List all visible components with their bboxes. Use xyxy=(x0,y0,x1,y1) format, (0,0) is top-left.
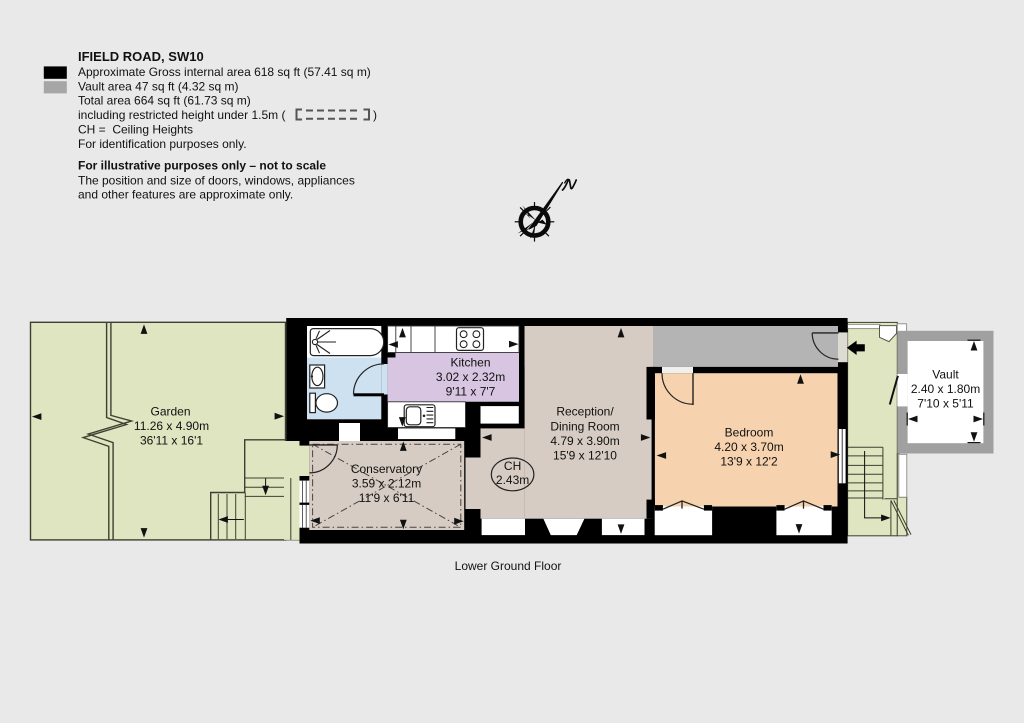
svg-text:36'11 x 16'1: 36'11 x 16'1 xyxy=(140,434,203,448)
svg-text:The position and size of doors: The position and size of doors, windows,… xyxy=(78,174,355,188)
svg-text:Kitchen: Kitchen xyxy=(450,356,490,370)
svg-text:7'10 x 5'11: 7'10 x 5'11 xyxy=(917,397,974,411)
svg-text:Lower Ground Floor: Lower Ground Floor xyxy=(455,559,562,573)
svg-text:Dining Room: Dining Room xyxy=(550,420,619,434)
svg-text:For illustrative purposes only: For illustrative purposes only – not to … xyxy=(78,159,326,173)
svg-text:and other features are approxi: and other features are approximate only. xyxy=(78,188,293,202)
svg-text:Bedroom: Bedroom xyxy=(725,426,774,440)
svg-text:CH = Ceiling Heights: CH = Ceiling Heights xyxy=(78,123,193,137)
svg-text:13'9 x 12'2: 13'9 x 12'2 xyxy=(720,455,778,469)
svg-text:Reception/: Reception/ xyxy=(556,405,614,419)
svg-text:including restricted height un: including restricted height under 1.5m ( xyxy=(78,108,285,122)
svg-text:9'11 x 7'7: 9'11 x 7'7 xyxy=(446,385,496,399)
svg-text:Conservatory: Conservatory xyxy=(351,462,422,476)
svg-text:Garden: Garden xyxy=(150,405,190,419)
svg-text:): ) xyxy=(373,108,377,122)
svg-text:CH: CH xyxy=(504,459,521,473)
svg-text:Vault: Vault xyxy=(932,368,959,382)
svg-text:15'9 x 12'10: 15'9 x 12'10 xyxy=(553,449,617,463)
svg-text:2.40 x 1.80m: 2.40 x 1.80m xyxy=(911,382,980,396)
svg-text:Total area 664 sq ft (61.73 sq: Total area 664 sq ft (61.73 sq m) xyxy=(78,94,251,108)
svg-text:Vault area 47 sq ft (4.32 sq m: Vault area 47 sq ft (4.32 sq m) xyxy=(78,80,239,94)
svg-text:3.02 x 2.32m: 3.02 x 2.32m xyxy=(436,370,505,384)
svg-text:IFIELD ROAD, SW10: IFIELD ROAD, SW10 xyxy=(78,49,204,64)
svg-text:4.20 x 3.70m: 4.20 x 3.70m xyxy=(714,440,783,454)
svg-text:11'9 x 6'11: 11'9 x 6'11 xyxy=(359,491,415,505)
svg-text:2.43m: 2.43m xyxy=(496,473,529,487)
svg-text:4.79 x 3.90m: 4.79 x 3.90m xyxy=(550,434,619,448)
svg-text:11.26 x 4.90m: 11.26 x 4.90m xyxy=(134,419,209,433)
svg-text:Approximate Gross internal are: Approximate Gross internal area 618 sq f… xyxy=(78,65,371,79)
svg-text:For identification purposes on: For identification purposes only. xyxy=(78,137,247,151)
svg-text:3.59 x 2.12m: 3.59 x 2.12m xyxy=(352,477,421,491)
